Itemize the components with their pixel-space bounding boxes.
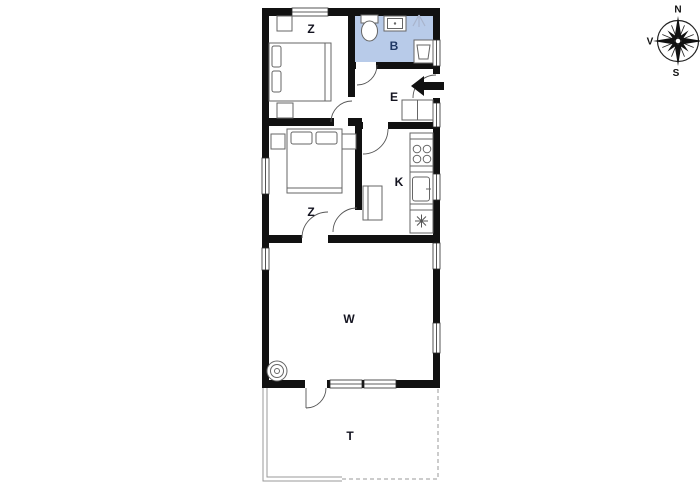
pillow [291, 132, 312, 144]
opening-kitchen-door [363, 122, 388, 129]
pillow [272, 71, 281, 92]
bedroom2-furniture [271, 129, 356, 193]
compass-point-south [675, 45, 682, 67]
wood-burning-stove-icon [267, 361, 287, 381]
bedroom1-furniture [269, 16, 331, 118]
entrance-closet [402, 100, 433, 120]
stove-burner-icon [423, 145, 431, 153]
pantry-cupboard [363, 186, 382, 220]
room-label-bedroom1: Z [307, 22, 314, 36]
opening-terrace-door [305, 380, 327, 388]
wall-livingroom-top [262, 235, 440, 243]
nightstand [271, 134, 285, 149]
door-swing-kitchen [363, 129, 388, 154]
stove-burner-icon [413, 145, 421, 153]
window-bottom-livingroom-1 [330, 380, 362, 388]
room-label-kitchen: K [395, 175, 404, 189]
opening-bathroom-door [356, 62, 376, 69]
floor-plan-drawing: Z B E Z K W T N V S [0, 0, 700, 500]
opening-livingroom-door [302, 235, 328, 243]
compass-point-west [653, 38, 675, 45]
window-left-bedroom2 [262, 158, 269, 194]
dresser [277, 103, 293, 118]
door-swing-terrace [306, 388, 326, 408]
opening-bedroom2-door [355, 210, 362, 232]
compass-rose-icon: N V S [647, 5, 700, 80]
room-label-livingroom: W [343, 312, 355, 326]
compass-point-east [682, 38, 700, 45]
compass-hub [675, 38, 681, 44]
compass-label-north: N [674, 5, 681, 16]
wall-bedroom1-bathroom [348, 8, 355, 69]
opening-bedroom1-door [334, 118, 348, 126]
nightstand [342, 134, 356, 149]
room-label-bedroom2: Z [307, 205, 314, 219]
wall-bedroom1-bedroom2 [262, 118, 338, 126]
pillow [316, 132, 337, 144]
stove-burner-icon [413, 155, 421, 163]
window-left-livingroom [262, 248, 269, 270]
window-right-livingroom-2 [433, 323, 440, 353]
wall-bedroom2-kitchen [355, 118, 362, 212]
washing-machine-drum [417, 45, 430, 59]
wardrobe [277, 16, 292, 31]
window-bottom-livingroom-2 [364, 380, 396, 388]
wall-left [262, 8, 269, 388]
toilet-bowl-icon [362, 21, 378, 41]
window-right-bathroom [433, 40, 440, 66]
wall-bedroom1-hall [348, 69, 355, 97]
window-top-bedroom1 [292, 8, 328, 16]
floor-plan-page: Z B E Z K W T N V S [0, 0, 700, 500]
compass-point-north [675, 16, 682, 38]
pillow [272, 46, 281, 67]
opening-bedroom1-door-side [348, 97, 355, 118]
compass-label-south: S [673, 68, 680, 79]
room-label-terrace: T [346, 429, 354, 443]
door-swing-livingroom [302, 212, 328, 238]
basin-drain [394, 22, 396, 24]
compass-label-west: V [647, 37, 654, 48]
terrace-edge-inner [267, 388, 342, 477]
stove-burner-icon [423, 155, 431, 163]
room-label-entrance: E [390, 90, 398, 104]
room-label-bathroom: B [390, 39, 399, 53]
window-right-livingroom-1 [433, 243, 440, 269]
window-right-entrance [433, 103, 440, 127]
window-right-kitchen [433, 174, 440, 200]
door-swing-bedroom2 [333, 208, 357, 232]
terrace-edge-outer [263, 388, 342, 481]
terrace-edge-dashed [342, 388, 438, 479]
